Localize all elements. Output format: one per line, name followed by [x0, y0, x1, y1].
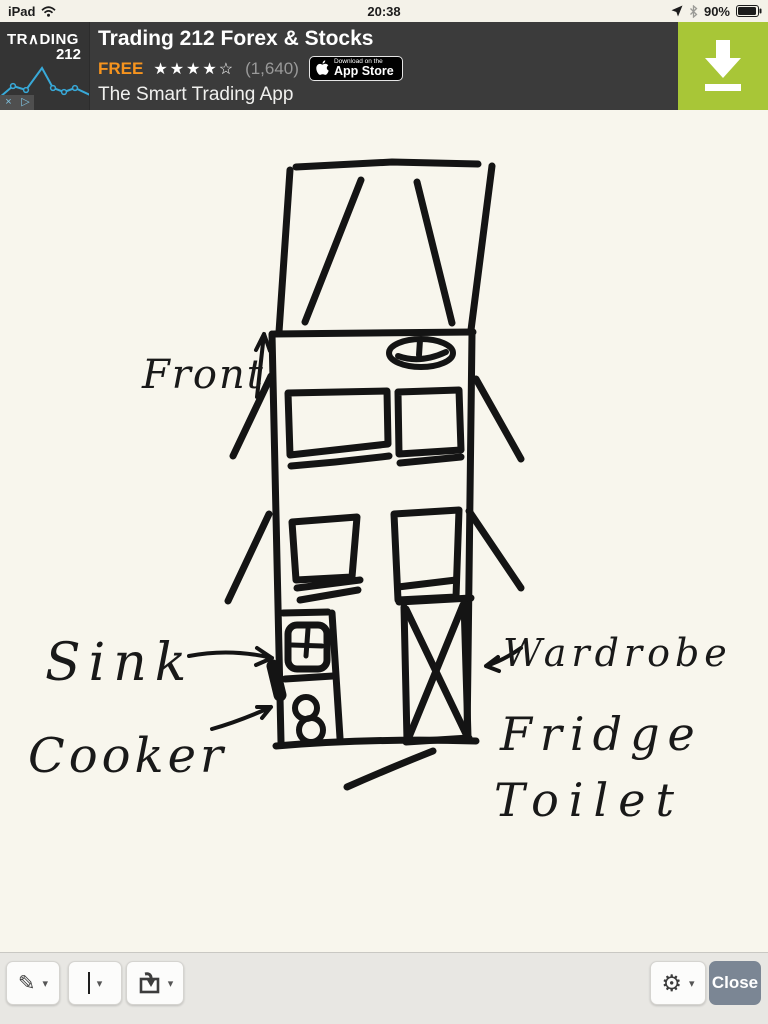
- clock-label: 20:38: [367, 4, 400, 19]
- app-store-badge-large-text: App Store: [334, 65, 394, 78]
- bluetooth-icon: [689, 5, 698, 18]
- export-button[interactable]: ▾: [126, 961, 184, 1005]
- carrier-label: iPad: [8, 4, 35, 19]
- bottom-toolbar: ✎ ▾ ▾ ▾ ⚙ ▾ Close: [0, 952, 768, 1024]
- ad-close-icon[interactable]: ×: [0, 95, 17, 110]
- label-toilet: Toilet: [494, 773, 684, 827]
- ad-rating-count: (1,640): [245, 59, 299, 79]
- drawing-canvas[interactable]: Front Sink Cooker Wardrobe Fridge Toilet: [0, 110, 768, 952]
- location-icon: [671, 5, 683, 17]
- label-cooker: Cooker: [28, 728, 227, 784]
- ad-tagline: The Smart Trading App: [98, 84, 293, 106]
- line-width-icon: [88, 972, 90, 994]
- line-width-button[interactable]: ▾: [68, 961, 122, 1005]
- sketch-cab: [274, 162, 492, 334]
- ad-banner[interactable]: TR∧DING 212 Trading 212 Forex & Stocks F…: [0, 22, 768, 110]
- pen-tool-button[interactable]: ✎ ▾: [6, 961, 60, 1005]
- adchoices-icon[interactable]: ▷: [17, 95, 34, 110]
- chevron-down-icon: ▾: [97, 977, 103, 990]
- app-store-badge[interactable]: Download on the App Store: [309, 56, 403, 81]
- gear-icon: ⚙: [661, 970, 682, 997]
- chevron-down-icon: ▾: [168, 977, 174, 990]
- van-floorplan-sketch: Front Sink Cooker Wardrobe Fridge Toilet: [0, 110, 768, 952]
- label-fridge: Fridge: [499, 707, 703, 761]
- download-icon: [700, 39, 746, 93]
- label-wardrobe: Wardrobe: [503, 631, 732, 675]
- ad-download-button[interactable]: [678, 22, 768, 110]
- pen-icon: ✎: [18, 971, 36, 996]
- ad-title: Trading 212 Forex & Stocks: [98, 27, 373, 51]
- status-bar: iPad 20:38 90%: [0, 0, 768, 22]
- sketch-steering-wheel: [389, 339, 453, 367]
- ad-star-rating: ★★★★☆: [153, 59, 235, 79]
- battery-percent-label: 90%: [704, 4, 730, 19]
- sketch-wardrobe: [399, 598, 471, 742]
- ad-price-label: FREE: [98, 59, 143, 79]
- wifi-icon: [41, 6, 56, 17]
- settings-button[interactable]: ⚙ ▾: [650, 961, 706, 1005]
- close-button[interactable]: Close: [709, 961, 761, 1005]
- label-front: Front: [141, 352, 265, 398]
- battery-icon: [736, 5, 762, 17]
- chevron-down-icon: ▾: [43, 977, 49, 990]
- label-sink: Sink: [45, 633, 194, 693]
- chevron-down-icon: ▾: [689, 977, 695, 990]
- adchoices-controls: × ▷: [0, 95, 34, 110]
- sketch-seats: [288, 390, 461, 600]
- export-icon: [137, 971, 161, 995]
- logo-text-line2: 212: [56, 46, 81, 63]
- app-screen: iPad 20:38 90% TR∧DING: [0, 0, 768, 1024]
- apple-icon: [316, 60, 329, 76]
